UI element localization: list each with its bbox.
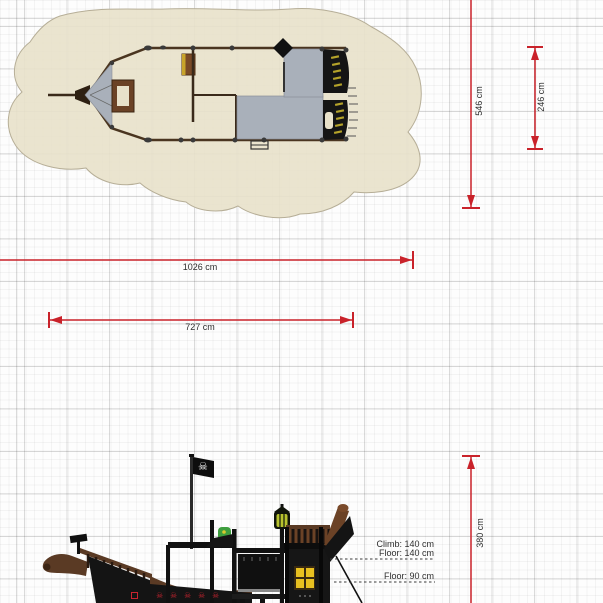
sand-surface-area — [8, 9, 421, 218]
hull-skull-emblem-icon: ☠ — [156, 591, 163, 600]
stern-post — [285, 527, 289, 603]
plan-main-deck — [237, 96, 323, 139]
dimension-label-overall-width: 546 cm — [474, 79, 484, 123]
bow-scroll — [44, 564, 51, 571]
plan-net-frame-inner — [117, 86, 129, 106]
stern-tail-knob — [338, 504, 349, 512]
plan-upper-deck — [284, 49, 323, 97]
cabin-panel-sill — [238, 589, 284, 592]
plan-slide-edge — [182, 54, 186, 75]
plan-stern-notch — [325, 112, 333, 129]
dimension-label-deck-length: 727 cm — [170, 322, 230, 332]
height-label-floor-lower: Floor: 90 cm — [354, 571, 434, 581]
lantern-glow — [277, 514, 288, 527]
lower-beam — [232, 594, 286, 599]
height-label-floor-upper: Floor: 140 cm — [354, 548, 434, 558]
deck-post — [240, 599, 245, 603]
slide-detail — [222, 530, 226, 534]
deck-post — [260, 599, 265, 603]
hull-skull-emblem-icon: ☠ — [170, 591, 177, 600]
drawing-canvas — [0, 0, 603, 603]
hull-skull-emblem-icon: ☠ — [198, 591, 205, 600]
mast-top — [189, 454, 194, 457]
mid-beam — [232, 548, 286, 553]
dimension-label-overall-length: 1026 cm — [170, 262, 230, 272]
hull-skull-emblem-icon: ☠ — [212, 591, 219, 600]
elevation-view-ship — [43, 454, 362, 603]
hull-emblem-square — [131, 592, 138, 599]
bow-telescope-post — [77, 541, 80, 554]
hull-skull-emblem-icon: ☠ — [184, 591, 191, 600]
lantern-post — [280, 528, 284, 603]
dimension-label-overall-height: 380 cm — [475, 511, 485, 555]
mast — [190, 457, 193, 549]
stern-rail — [286, 525, 330, 529]
stern-post — [319, 527, 323, 603]
dimension-label-deck-width: 246 cm — [536, 75, 546, 119]
skull-crossbones-icon: ☠ — [198, 461, 208, 472]
playground-technical-drawing: 1026 cm 727 cm 546 cm 246 cm 380 cm Clim… — [0, 0, 603, 603]
